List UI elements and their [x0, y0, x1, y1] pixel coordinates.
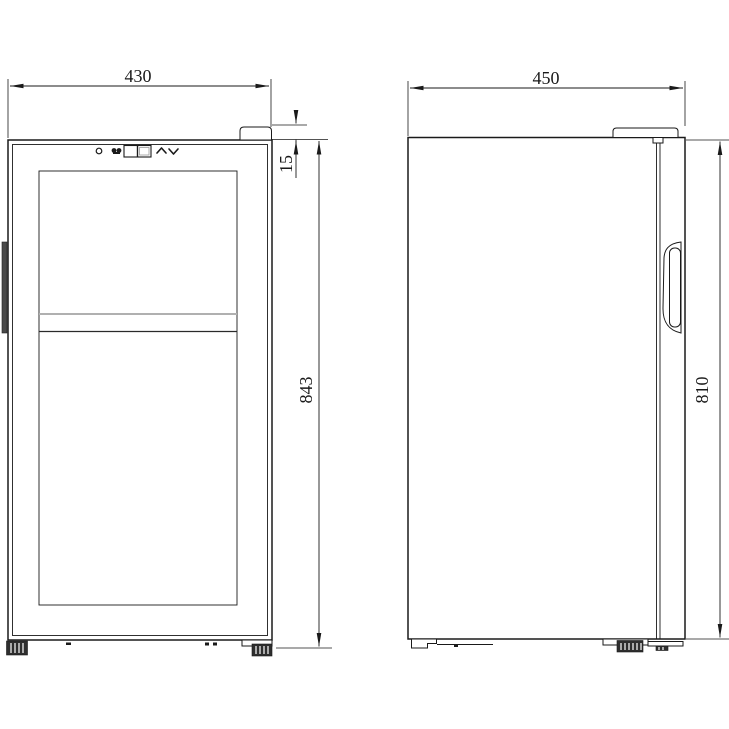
front-feet	[7, 640, 273, 656]
side-left-foot	[412, 639, 437, 648]
door-handle-side	[663, 242, 681, 333]
top-hinge-front	[240, 127, 272, 140]
side-height-dimension: 810	[686, 140, 729, 639]
side-feet	[412, 639, 684, 652]
base-mark	[205, 643, 209, 646]
side-view: 450	[408, 68, 729, 652]
front-view: 430	[2, 66, 332, 656]
temperature-display	[124, 146, 151, 158]
side-depth-label: 450	[533, 68, 560, 88]
front-width-dimension: 430	[8, 66, 271, 138]
hinge-height-label: 15	[276, 155, 296, 173]
front-left-foot	[7, 641, 28, 655]
base-mark	[454, 645, 458, 648]
technical-drawing: 430	[0, 0, 729, 729]
drawing-canvas: 430	[0, 0, 729, 729]
top-hinge-side	[613, 128, 678, 138]
front-height-label: 843	[296, 377, 316, 404]
side-height-label: 810	[692, 377, 712, 404]
side-right-foot	[603, 639, 683, 652]
door-handle-front	[2, 242, 7, 333]
front-height-dimension: 843	[276, 141, 332, 648]
hinge-pin	[653, 138, 663, 144]
base-mark	[213, 643, 217, 646]
base-mark	[66, 643, 71, 646]
side-body	[408, 138, 685, 640]
front-door-outer	[8, 140, 272, 640]
front-right-foot	[242, 640, 272, 656]
front-width-label: 430	[125, 66, 152, 86]
hinge-height-dimension: 15	[272, 111, 328, 178]
side-depth-dimension: 450	[408, 68, 685, 136]
